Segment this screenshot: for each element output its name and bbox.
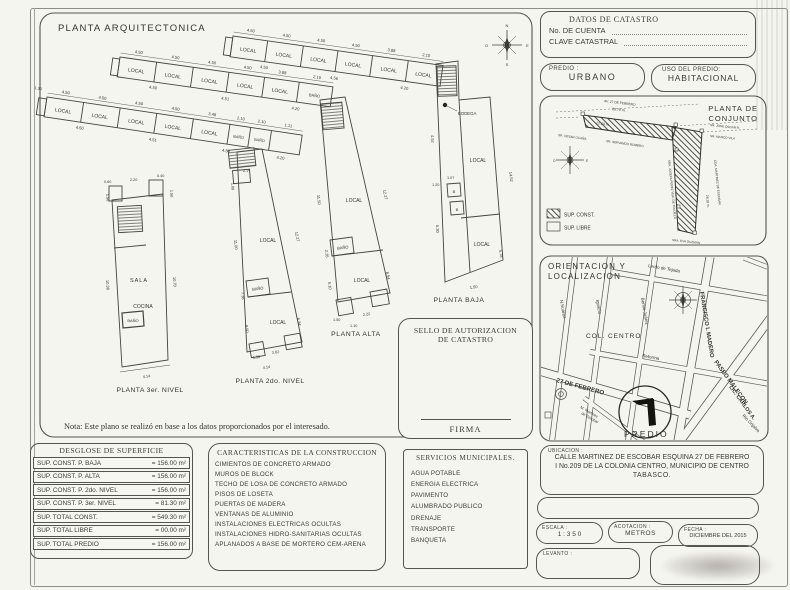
row-label: SUP. CONST. P. ALTA <box>37 473 100 480</box>
dim-label: 0.60 <box>104 180 111 184</box>
row-value: = 549.30 m² <box>152 514 186 521</box>
list-item: INSTALACIONES ELECTRICAS OCULTAS <box>215 520 385 530</box>
dim-label: 0.40 <box>157 174 164 178</box>
room-label: BAÑO <box>252 285 264 291</box>
dim-label: 4.50 <box>171 106 180 112</box>
servicios-box: SERVICIOS MUNICIPALES. AGUA POTABLE ENER… <box>403 449 528 569</box>
table-row: SUP. CONST. P. 2do. NIVEL= 156.00 m² <box>33 484 190 496</box>
row-value: = 156.00 m² <box>152 487 186 494</box>
parcel-horizontal-arm <box>583 115 676 140</box>
caracteristicas-box: CARACTERISTICAS DE LA CONSTRUCCION CIMIE… <box>208 443 386 571</box>
ubicacion-box: UBICACION : CALLE MARTINEZ DE ESCOBAR ES… <box>540 445 764 495</box>
area-label-col-centro: COL. CENTRO <box>586 333 641 340</box>
dim-label: 4.50 <box>352 42 361 48</box>
dim-label: 1.11 <box>284 122 293 128</box>
ubicacion-line1: CALLE MARTINEZ DE ESCOBAR ESQUINA 27 DE … <box>541 454 763 463</box>
room-label: LOCAL <box>201 129 218 137</box>
compass-icon <box>669 286 697 314</box>
dim-label: 1.10 <box>350 324 357 328</box>
room-label: BAÑO <box>233 134 244 141</box>
compass-e: E <box>586 159 588 163</box>
dim-label: 12.27 <box>382 189 389 201</box>
plan-note: Nota: Este plano se realizó en base a lo… <box>64 422 330 431</box>
room-label: LOCAL <box>415 71 432 79</box>
dim-label: 4.20 <box>291 105 300 111</box>
list-item: ALUMBRADO PUBLICO <box>411 501 527 512</box>
dim-label: 1.07 <box>447 176 454 180</box>
dim-label: 4.50 <box>171 54 180 60</box>
conjunto-title-line1: PLANTA DE <box>708 104 758 113</box>
localizacion-panel: ORIENTACION Y LOCALIZACION Lerdo de Teja… <box>538 254 770 444</box>
neighbor-label: SRA. EVA GUZMAN <box>672 238 700 245</box>
dim-label: 1.50 <box>333 318 340 322</box>
row-value: = 156.00 m² <box>152 473 186 480</box>
compass-icon <box>556 146 584 174</box>
planta-conjunto-panel: PLANTA DE CONJUNTO O E SUP. CONST. SUP. … <box>538 95 770 247</box>
dim-label: 11.00 <box>233 240 239 251</box>
room-label: LOCAL <box>128 118 145 126</box>
escala-box: ESCALA : 1 : 3 5 0 <box>536 522 603 544</box>
dim-label: 4.20 <box>400 85 409 91</box>
dim-label: 1.50 <box>169 190 174 198</box>
room-label: LOCAL <box>275 52 292 60</box>
room-label: LOCAL <box>260 238 277 244</box>
dim-label: 2.22 <box>363 312 371 317</box>
dim-label: 1.50 <box>469 284 478 290</box>
room-label: LOCAL <box>346 198 363 204</box>
table-row: SUP. CONST. P. ALTA= 156.00 m² <box>33 471 190 483</box>
predio-value: URBANO <box>541 72 644 82</box>
dim-label: 4.50 <box>282 32 291 38</box>
list-item: VENTANAS DE ALUMINIO <box>215 510 385 520</box>
uso-value: HABITACIONAL <box>652 73 755 83</box>
list-item: ENERGIA ELECTRICA <box>411 479 527 490</box>
datos-title: DATOS DE CATASTRO <box>569 15 755 24</box>
floor-wing-baja-vertical <box>436 61 503 282</box>
row-value: = 00.00 m² <box>155 527 186 534</box>
dim-label: 6.34 <box>296 317 303 326</box>
column-dot <box>443 103 447 107</box>
firma-label: FIRMA <box>399 424 532 434</box>
list-item: CIMIENTOS DE CONCRETO ARMADO <box>215 460 385 470</box>
floor-plan-nivel3 <box>109 180 170 372</box>
dim-label: 4.50 <box>76 125 85 131</box>
floor-label-baja: PLANTA BAJA <box>433 297 484 304</box>
stairs-icon <box>321 102 344 130</box>
dim-label: 1.30 <box>34 86 42 91</box>
conjunto-street-top: AV. 27 DE FEBRERO <box>604 99 636 107</box>
room-label: BAÑO <box>254 137 265 144</box>
dim-label: 2.14 <box>243 168 251 173</box>
predio-map-label: PREDIO <box>624 429 669 439</box>
floor-wing-nivel2-vertical <box>228 148 302 358</box>
list-item: PISOS DE LOSETA <box>215 490 385 500</box>
legend-swatch-libre <box>547 222 560 231</box>
list-item: TECHO DE LOSA DE CONCRETO ARMADO <box>215 480 385 490</box>
room-label: SALA <box>130 278 148 284</box>
dim-label: 2.10 <box>313 74 322 80</box>
list-item: BANQUETA <box>411 535 527 546</box>
cadastral-plan-sheet: PLANTA ARQUITECTONICA N E S O LOCAL LOCA… <box>0 0 790 590</box>
dim-label: 5.78 <box>498 249 504 258</box>
dim-label: 2.10 <box>237 115 246 121</box>
dim-label: 4.50 <box>62 89 71 95</box>
compass-e: E <box>526 43 529 48</box>
empty-field-box <box>537 497 759 519</box>
row-label: SUP. TOTAL PREDIO <box>37 541 99 548</box>
levanto-box: LEVANTO : <box>536 548 640 579</box>
street-label: CDA. MARTINEZ DE ESCOBAR <box>713 160 722 206</box>
dim-label: 1.89 <box>230 183 235 191</box>
dim-label: 4.52 <box>430 135 435 144</box>
compass-n: N <box>506 23 509 28</box>
dim-label: 4.51 <box>149 137 158 143</box>
dim-label: 3.88 <box>278 69 287 75</box>
room-label: LOCAL <box>474 242 491 248</box>
dim-label: 11.50 <box>316 195 322 206</box>
legend-swatch-const <box>547 209 560 218</box>
row-label: SUP. CONST. P. 2do. NIVEL <box>37 487 118 494</box>
compass-icon <box>492 30 522 60</box>
dim-label: 3.48 <box>208 111 217 117</box>
row-label: SUP. CONST. P. 3er. NIVEL <box>37 500 116 507</box>
floor-label-nivel3: PLANTA 3er. NIVEL <box>116 387 183 394</box>
list-item: INSTALACIONES HIDRO-SANITARIAS OCULTAS <box>215 530 385 540</box>
ubicacion-line3: TABASCO. <box>541 472 763 481</box>
neighbor-label: SR. JOSE OSCAR R. <box>710 123 740 130</box>
plan-title: PLANTA ARQUITECTONICA <box>58 23 206 34</box>
fecha-value: DICIEMBRE DEL 2015 <box>679 533 757 539</box>
row-value: = 156.00 m² <box>152 541 186 548</box>
room-label: BAÑO <box>127 318 138 323</box>
dim-label: 4.50 <box>247 27 256 33</box>
dim-label: 2.35 <box>324 250 330 259</box>
room-label: BAÑO <box>309 92 321 99</box>
floor-strip-baja: LOCAL LOCAL LOCAL LOCAL LOCAL LOCAL 4.50… <box>222 25 445 96</box>
dim-label: 4.50 <box>135 100 144 106</box>
list-item: DRENAJE <box>411 513 527 524</box>
caracteristicas-title: CARACTERISTICAS DE LA CONSTRUCCION <box>209 448 385 457</box>
desglose-box: DESGLOSE DE SUPERFICIE SUP. CONST. P. BA… <box>30 443 193 559</box>
table-row: SUP. CONST. P. 3er. NIVEL= 81.30 m² <box>33 498 190 510</box>
table-row: SUP. TOTAL CONST.= 549.30 m² <box>33 511 190 523</box>
legend-label-const: SUP. CONST. <box>564 213 595 219</box>
dim-label: 8.54 <box>385 271 392 280</box>
room-label: LOCAL <box>240 47 257 55</box>
dim-label: 2.20 <box>130 178 137 182</box>
room-label: B <box>453 189 456 194</box>
servicios-title: SERVICIOS MUNICIPALES. <box>404 454 527 462</box>
room-label: LOCAL <box>345 61 362 69</box>
table-row: SUP. TOTAL PREDIO= 156.00 m² <box>33 538 190 550</box>
cuenta-label: No. DE CUENTA <box>549 26 606 35</box>
dim-label: 4.14 <box>143 374 151 379</box>
list-item: AGUA POTABLE <box>411 468 527 479</box>
list-item: PUERTAS DE MADERA <box>215 500 385 510</box>
predio-box: PREDIO : URBANO <box>540 63 645 91</box>
dim-label: 4.14 <box>263 365 271 370</box>
escala-value: 1 : 3 5 0 <box>537 531 602 538</box>
row-label: SUP. TOTAL LIBRE <box>37 527 93 534</box>
dim-label: 5.10 <box>327 282 333 291</box>
legend-label-libre: SUP. LIBRE <box>564 226 592 232</box>
dim-label: 4.50 <box>244 64 253 70</box>
sello-box: SELLO DE AUTORIZACION DE CATASTRO FIRMA <box>398 318 533 439</box>
signature-smudge <box>663 552 773 580</box>
sello-title-line2: DE CATASTRO <box>399 335 532 344</box>
neighbor-label: SR. SERVANDO ROMERO <box>606 139 645 148</box>
room-label: LOCAL <box>380 66 397 74</box>
row-value: = 156.00 m² <box>152 460 186 467</box>
dim-label: 4.50 <box>208 59 217 65</box>
clave-label: CLAVE CATASTRAL <box>549 37 618 46</box>
dim-label: 2.10 <box>422 52 431 58</box>
acotacion-box: ACOTACION : METROS <box>608 521 673 543</box>
row-label: SUP. CONST. P. BAJA <box>37 460 101 467</box>
room-label: B <box>456 207 459 212</box>
room-label: LOCAL <box>354 278 371 284</box>
row-value: = 81.30 m² <box>155 500 186 507</box>
room-label: BAÑO <box>337 244 349 250</box>
dim-label: 10.70 <box>172 277 178 288</box>
predio-parcel-glyph <box>632 398 656 426</box>
dim-label: 3.88 <box>387 47 396 53</box>
sello-title-line1: SELLO DE AUTORIZACION <box>399 326 532 335</box>
stairs-icon <box>117 205 142 232</box>
list-item: MUROS DE BLOCK <box>215 470 385 480</box>
compass-s: S <box>506 62 509 67</box>
room-label: LOCAL <box>164 72 181 80</box>
stairs-icon <box>437 66 457 97</box>
levanto-label: LEVANTO : <box>543 551 639 557</box>
uso-box: USO DEL PREDIO: HABITACIONAL <box>651 64 756 92</box>
desglose-title: DESGLOSE DE SUPERFICIE <box>31 446 192 455</box>
neighbor-label: SR. CESAR OCAÑA <box>558 132 588 141</box>
room-label: LOCAL <box>201 78 218 86</box>
dim-label: 28.18 m. <box>705 195 710 208</box>
dim-label: 4.50 <box>317 37 326 43</box>
room-label: LOCAL <box>470 158 487 164</box>
table-row: SUP. TOTAL LIBRE= 00.00 m² <box>33 525 190 537</box>
firma-line <box>421 419 511 420</box>
dim-label: 12.27 <box>294 231 301 243</box>
datos-catastro-box: DATOS DE CATASTRO No. DE CUENTA CLAVE CA… <box>540 11 756 58</box>
street-label-suarez: N.Suarez <box>559 299 567 319</box>
ubicacion-line2: I No.209 DE LA COLONIA CENTRO, MUNICIPIO… <box>541 463 763 472</box>
room-label: LOCAL <box>128 67 145 75</box>
room-label: COCINA <box>133 304 153 310</box>
dim-label: 4.50 <box>149 84 158 90</box>
dim-label: 28.70 m. <box>612 107 626 113</box>
list-item: PAVIMENTO <box>411 490 527 501</box>
room-label: LOCAL <box>237 83 254 91</box>
table-row: SUP. CONST. P. BAJA= 156.00 m² <box>33 457 190 469</box>
acotacion-value: METROS <box>609 530 672 537</box>
dim-label: 3.62 <box>272 350 280 355</box>
room-label: BODEGA <box>458 111 477 116</box>
dim-label: 4.50 <box>135 49 144 55</box>
dim-label: 10.38 <box>105 280 111 291</box>
map-title-line1: ORIENTACION Y <box>548 262 626 271</box>
cuenta-blank-line <box>612 26 747 35</box>
floor-label-nivel2: PLANTA 2do. NIVEL <box>235 378 304 385</box>
neighbor-label: SR. MARCO VILA <box>710 134 736 141</box>
room-label: LOCAL <box>270 320 287 326</box>
street-map <box>538 257 770 444</box>
dim-label: 4.20 <box>276 155 285 161</box>
floor-label-alta: PLANTA ALTA <box>331 331 381 338</box>
list-item: TRANSPORTE <box>411 524 527 535</box>
compass-o: O <box>553 159 556 163</box>
dim-label: 2.10 <box>257 118 266 124</box>
dim-label: 8.50 <box>244 325 250 334</box>
fecha-box: FECHA : DICIEMBRE DEL 2015 <box>678 524 758 547</box>
map-title-line2: LOCALIZACION <box>548 272 621 281</box>
dim-label: 6.30 <box>435 225 440 234</box>
row-label: SUP. TOTAL CONST. <box>37 514 98 521</box>
signature-box <box>650 545 760 585</box>
dim-label: 4.50 <box>260 64 269 70</box>
conjunto-title-line2: CONJUNTO <box>708 114 758 123</box>
list-item: APLANADOS A BASE DE MORTERO CEM-ARENA <box>215 540 385 550</box>
compass-o: O <box>485 43 488 48</box>
clave-blank-line <box>624 37 747 46</box>
room-label: LOCAL <box>91 113 108 121</box>
room-label: LOCAL <box>310 57 327 65</box>
dim-label: 4.51 <box>221 96 230 102</box>
room-label: LOCAL <box>271 87 288 95</box>
dim-label: 4.50 <box>98 95 107 101</box>
dim-label: 4.56 <box>330 75 339 81</box>
dim-label: 14.52 <box>508 171 514 182</box>
room-label: LOCAL <box>54 107 71 115</box>
room-label: LOCAL <box>164 124 181 132</box>
stairs-icon <box>228 148 256 169</box>
dim-label: 1.50 <box>105 194 110 202</box>
dim-label: 1.20 <box>432 183 439 187</box>
dim-label: 1.50 <box>253 355 261 360</box>
dim-label: 7.36 <box>240 292 246 301</box>
